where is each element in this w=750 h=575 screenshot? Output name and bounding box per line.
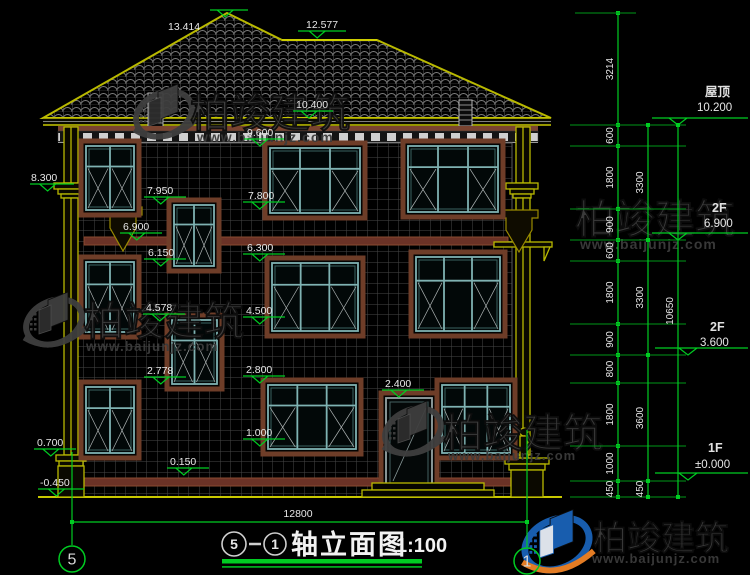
floor-label: 1F (708, 441, 723, 455)
window (267, 258, 363, 336)
floor-band-3f (84, 237, 508, 245)
title-text: 轴立面图 (291, 529, 407, 560)
chain-dimension-value: 1800 (605, 281, 616, 304)
elevation-label: 0.700 (37, 437, 63, 449)
watermark: 柏竣建筑www.baijunjz.com (129, 83, 350, 145)
watermark: 柏竣建筑www.baijunjz.com (19, 291, 244, 354)
elevation-label: 12.577 (306, 19, 338, 31)
chain-dimension-value: 3300 (635, 286, 646, 309)
window (265, 143, 365, 218)
elevation-label: 2.400 (385, 378, 411, 390)
elevation-label: 6.300 (247, 242, 273, 254)
axis-bubble-5-label: 5 (68, 552, 77, 569)
elevation-label: 7.800 (248, 190, 274, 202)
window (263, 380, 361, 454)
elevation-label: 0.150 (170, 456, 196, 468)
watermark-url: www.baijunjz.com (447, 448, 576, 463)
elevation-label: 9.600 (247, 127, 273, 139)
elevation-label: 1.000 (246, 427, 272, 439)
chain-dimension-value: 800 (605, 360, 616, 377)
elevation-label: 7.950 (147, 185, 173, 197)
title-axis-from: 5 (230, 536, 238, 552)
watermark-url: www.baijunjz.com (591, 551, 720, 566)
window (411, 252, 505, 336)
chain-dimension-value: 3600 (635, 406, 646, 429)
chain-dimension-value: 1000 (605, 452, 616, 475)
chain-dimension-value: 3214 (605, 57, 616, 80)
floor-elevation-value: 10.200 (697, 102, 732, 114)
title-underline-thick (222, 559, 422, 564)
elevation-label: -0.450 (40, 477, 70, 489)
window (403, 141, 503, 217)
window (81, 382, 139, 458)
chain-dimension-value: 900 (605, 216, 616, 233)
chain-dimension-value: 10650 (665, 297, 676, 325)
floor-elevation-value: 3.600 (700, 337, 729, 349)
chain-dimension-value: 1800 (605, 403, 616, 426)
floor-label: 2F (712, 201, 727, 215)
elevation-label: 4.500 (246, 305, 272, 317)
chain-dimension-value: 450 (605, 480, 616, 497)
elevation-label: 8.300 (31, 172, 57, 184)
window (169, 200, 219, 271)
chain-dimension-value: 3300 (635, 171, 646, 194)
elevation-drawing: 柏竣建筑www.baijunjz.com柏竣建筑www.baijunjz.com… (0, 0, 750, 575)
title-scale: 1:100 (396, 535, 447, 557)
axis-bubble-1-label: 1 (523, 554, 532, 571)
chain-dimension-value: 900 (605, 331, 616, 348)
watermark-url: www.baijunjz.com (85, 339, 219, 354)
elevation-label: 10.400 (296, 99, 328, 111)
chain-dimension-value: 600 (605, 242, 616, 259)
elevation-label: 2.778 (147, 365, 173, 377)
elevation-label: 13.414 (168, 21, 200, 33)
elevation-label: 6.900 (123, 221, 149, 233)
chain-dimension-value: 450 (635, 480, 646, 497)
chain-dimension-value: 1800 (605, 166, 616, 189)
overall-dimension: 12800 (283, 508, 312, 520)
chain-dimension-value: 600 (605, 127, 616, 144)
floor-label: 2F (710, 320, 725, 334)
entry-steps (362, 483, 494, 497)
floor-elevation-value: 6.900 (704, 218, 733, 230)
window (81, 141, 139, 215)
title-underline-thin (222, 566, 422, 568)
floor-label: 屋顶 (705, 84, 731, 99)
floor-elevation-value: ±0.000 (695, 459, 730, 471)
title-axis-to: 1 (271, 536, 279, 552)
elevation-label: 6.150 (148, 247, 174, 259)
elevation-label: 4.578 (146, 302, 172, 314)
elevation-label: 2.800 (246, 364, 272, 376)
